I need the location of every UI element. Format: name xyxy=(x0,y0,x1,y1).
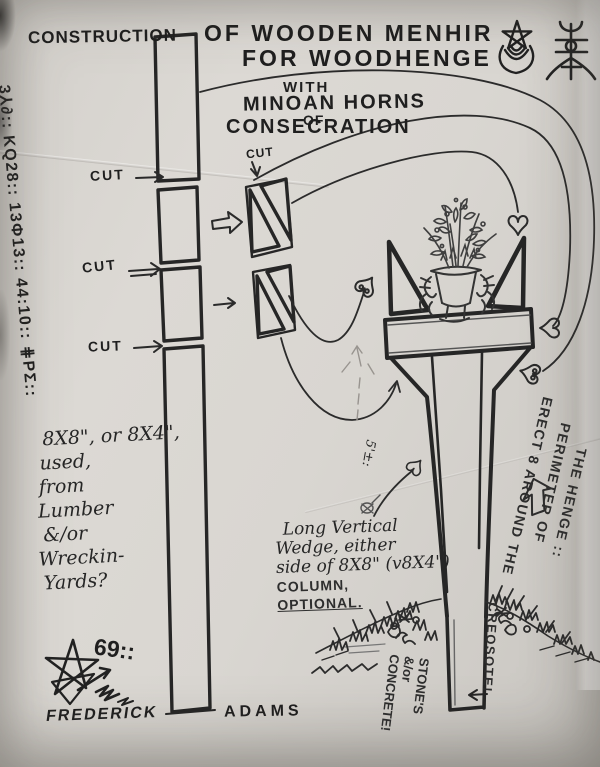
menhir-column-elevation xyxy=(155,34,215,714)
curve-wedge-joint xyxy=(281,338,396,420)
title-line1: OF WOODEN MENHIR xyxy=(204,20,494,47)
curve-wedge-heart xyxy=(289,292,364,342)
pencil-marks xyxy=(342,346,380,513)
scanned-sketch-page: CONSTRUCTION OF WOODEN MENHIR FOR WOODHE… xyxy=(0,0,600,767)
subtitle-consecration: CONSECRATION xyxy=(226,116,411,139)
tree-glyph-sigil-icon xyxy=(547,22,595,79)
signature-last-name: ADAMS xyxy=(224,702,303,721)
transfer-arrows xyxy=(212,212,242,308)
foundation-note: STONE'S &/or CONCRETE! xyxy=(378,654,432,736)
cut-label-joint3: CUT xyxy=(88,337,123,354)
pentagram-crescent-sigil-icon xyxy=(500,21,533,73)
title-line2: FOR WOODHENGE xyxy=(242,45,492,72)
subtitle-minoan-horns: MINOAN HORNS xyxy=(243,90,426,116)
lumber-note: 8X8", or 8X4", used, from Lumber &/or Wr… xyxy=(32,420,188,595)
curve-to-horn xyxy=(292,152,518,212)
curve-height xyxy=(374,471,412,516)
title-construction: CONSTRUCTION xyxy=(28,26,177,49)
cut-label-wedge: CUT xyxy=(245,145,274,162)
wedge-note: Long Vertical Wedge, either side of 8X8"… xyxy=(274,515,451,614)
wedge-detail-2 xyxy=(253,265,295,338)
wedge-detail-1 xyxy=(246,179,292,257)
plant-bouquet xyxy=(424,198,496,268)
sigil-glyph-69: 69:: xyxy=(92,633,136,665)
cut-label-joint1: CUT xyxy=(90,166,126,184)
cut-joint-arrows xyxy=(129,162,260,352)
